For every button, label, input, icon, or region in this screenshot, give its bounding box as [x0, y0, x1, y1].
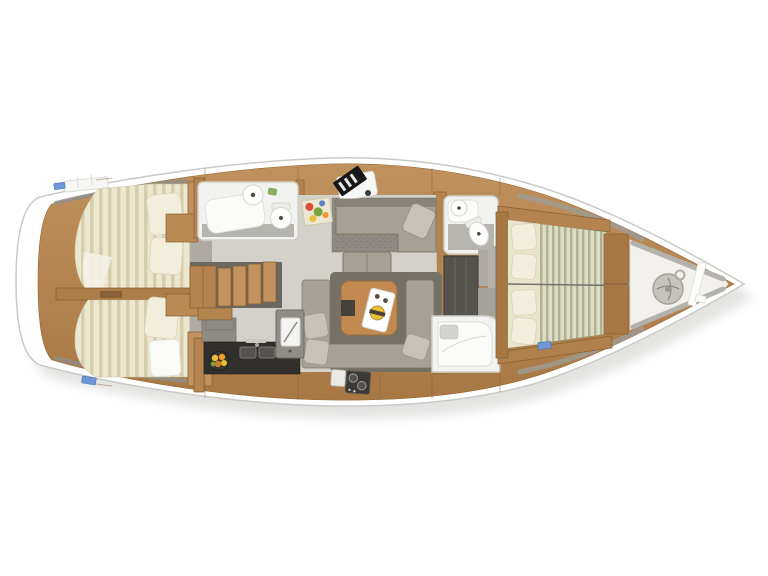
floorplan-canvas: [0, 0, 768, 576]
refrigerator: [276, 310, 304, 358]
fwd-head-lower: [432, 316, 500, 372]
fruit-bowl: [210, 352, 229, 371]
fwd-head-upper: [444, 196, 498, 254]
counter-trim: [246, 339, 266, 343]
nav-seat: [365, 190, 371, 196]
cabin-locker: [166, 214, 198, 242]
tub-seat: [440, 325, 458, 339]
toilet-drain: [279, 216, 283, 220]
stair-landing: [206, 320, 234, 330]
white-pillow: [149, 339, 181, 377]
aft-head: [198, 182, 298, 240]
salon-table: [341, 281, 397, 335]
stair-lower-step: [198, 308, 232, 320]
faucet: [255, 343, 259, 347]
basin-drain: [251, 193, 255, 197]
aft-cabin-divider-step: [100, 291, 122, 298]
yacht-floorplan: [0, 0, 768, 576]
cabin-hatch: [538, 341, 552, 349]
floral-painting: [302, 197, 333, 225]
table-leaf-notch: [341, 300, 355, 316]
stern-hatch-top: [54, 182, 66, 189]
cabin-left-wall: [496, 212, 508, 358]
